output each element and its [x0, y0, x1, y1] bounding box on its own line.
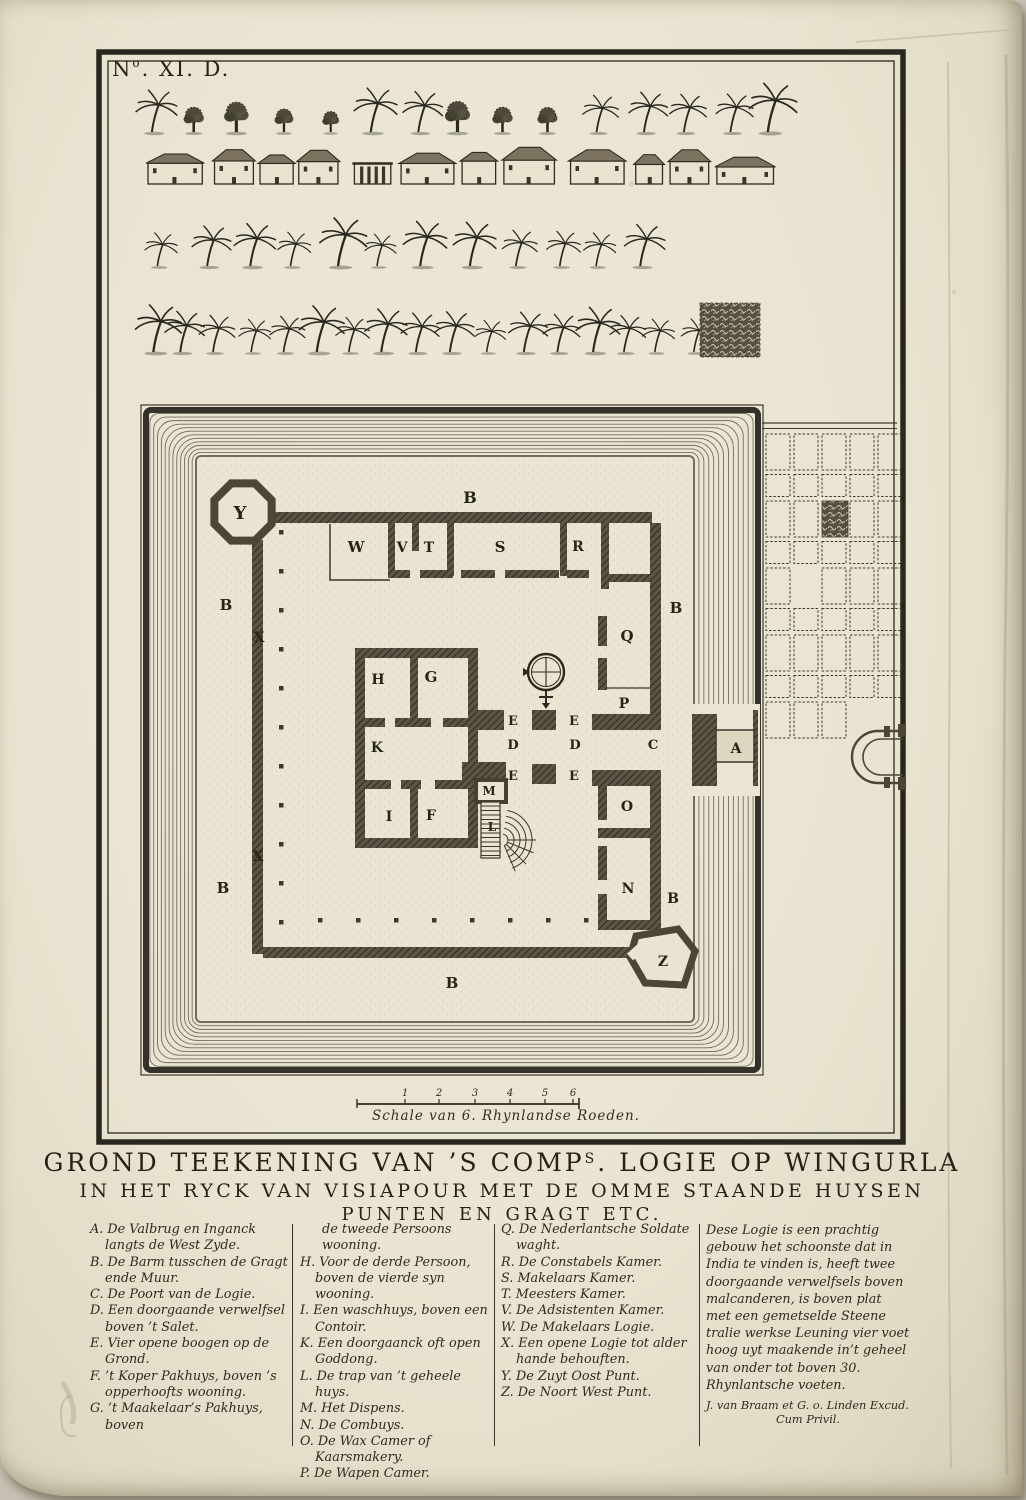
legend-entry: K. Een doorgaanck oft open Goddong.	[300, 1336, 490, 1369]
legend-key: R.	[501, 1255, 515, 1270]
map-letter-L: L	[488, 820, 497, 834]
legend-key: G.	[90, 1401, 104, 1416]
map-letter-Q: Q	[620, 627, 633, 645]
legend-entry-continuation: de tweede Persoons wooning.	[300, 1222, 490, 1255]
legend-divider	[699, 1224, 700, 1446]
map-letter-N: N	[622, 881, 635, 897]
map-letter-W: W	[347, 538, 366, 556]
legend-entry: A. De Valbrug en Inganck langts de West …	[90, 1222, 290, 1255]
map-letter-O: O	[621, 799, 633, 815]
map-letter-E: E	[569, 714, 579, 729]
map-letter-G: G	[425, 668, 438, 686]
legend-key: M.	[300, 1401, 317, 1416]
legend-entry: H. Voor de derde Persoon, boven de vierd…	[300, 1255, 490, 1304]
plate-number: No. XI. D.	[112, 56, 230, 81]
scanned-print-page: BYWVTSRBBXQHGPEEDDCAKEEMOIFLXNBBZB 12345…	[0, 0, 1026, 1500]
legend-entry: R. De Constabels Kamer.	[501, 1255, 697, 1271]
legend-key: N.	[300, 1418, 314, 1433]
map-letter-F: F	[426, 808, 436, 824]
map-title: GROND TEEKENING VAN ’S COMPS. LOGIE OP W…	[0, 1148, 1004, 1225]
map-letter-A: A	[730, 741, 743, 757]
legend-key: S.	[501, 1271, 513, 1286]
legend-key: H.	[300, 1255, 315, 1270]
map-letter-H: H	[371, 672, 384, 688]
legend-entry: D. Een doorgaande verwelfsel boven ’t Sa…	[90, 1303, 290, 1336]
map-letter-E: E	[508, 769, 518, 784]
legend-column-4: Dese Logie is een prachtig gebouw het sc…	[706, 1222, 910, 1426]
legend-entry: Z. De Noort West Punt.	[501, 1385, 697, 1401]
map-letter-X: X	[253, 849, 264, 865]
legend-key: V.	[501, 1303, 512, 1318]
legend-key: B.	[90, 1255, 103, 1270]
map-letter-B: B	[670, 599, 683, 617]
legend-key: K.	[300, 1336, 314, 1351]
scale-bar: 123456	[357, 1088, 579, 1109]
map-letter-D: D	[569, 738, 580, 753]
map-letter-T: T	[424, 540, 435, 556]
legend-key: C.	[90, 1287, 103, 1302]
map-letter-B: B	[217, 879, 230, 897]
legend-key: Z.	[501, 1385, 514, 1400]
legend-key: I.	[300, 1303, 309, 1318]
legend-note-paragraph: Dese Logie is een prachtig gebouw het sc…	[706, 1222, 910, 1394]
legend-entry: Y. De Zuyt Oost Punt.	[501, 1369, 697, 1385]
legend-key: D.	[90, 1303, 104, 1318]
legend-column-3: Q. De Nederlantsche Soldate waght.R. De …	[501, 1222, 697, 1401]
legend-key: P.	[300, 1466, 310, 1481]
scale-tick-label: 5	[542, 1088, 548, 1099]
legend-divider	[292, 1224, 293, 1446]
clamp-mark	[852, 724, 906, 790]
map-letter-S: S	[495, 538, 506, 556]
legend-entry: L. De trap van ’t geheele huys.	[300, 1369, 490, 1402]
map-letter-B: B	[220, 596, 233, 614]
map-letter-V: V	[396, 540, 409, 556]
map-letter-M: M	[482, 784, 495, 798]
legend-entry: V. De Adsistenten Kamer.	[501, 1303, 697, 1319]
legend-key: F.	[90, 1369, 101, 1384]
legend-entry: G. ’t Maakelaar’s Pakhuys, boven	[90, 1401, 290, 1434]
imprint-line: Cum Privil.	[706, 1413, 910, 1427]
map-letter-E: E	[569, 769, 579, 784]
legend-entry: Q. De Nederlantsche Soldate waght.	[501, 1222, 697, 1255]
scale-tick-label: 3	[472, 1088, 478, 1099]
map-letter-C: C	[648, 738, 658, 753]
map-letter-B: B	[446, 974, 459, 992]
legend-key: L.	[300, 1369, 313, 1384]
map-letter-P: P	[619, 696, 630, 712]
legend-entry: F. ’t Koper Pakhuys, boven ’s opperhooft…	[90, 1369, 290, 1402]
legend-entry: N. De Combuys.	[300, 1418, 490, 1434]
map-letter-I: I	[386, 809, 393, 825]
legend-entry: X. Een opene Logie tot alder hande behou…	[501, 1336, 697, 1369]
decorative-landscape-rows	[136, 83, 797, 357]
legend-entry: E. Vier opene boogen op de Grond.	[90, 1336, 290, 1369]
legend-key: Y.	[501, 1369, 512, 1384]
legend-entry: M. Het Dispens.	[300, 1401, 490, 1417]
legend-column-1: A. De Valbrug en Inganck langts de West …	[90, 1222, 290, 1434]
title-line-2: IN HET RYCK VAN VISIAPOUR MET DE OMME ST…	[0, 1180, 1004, 1202]
legend-entry: B. De Barm tusschen de Gragt ende Muur.	[90, 1255, 290, 1288]
legend-entry: W. De Makelaars Logie.	[501, 1320, 697, 1336]
map-letter-R: R	[572, 539, 584, 555]
legend-key: X.	[501, 1336, 514, 1351]
legend-entry: I. Een waschhuys, boven een Contoir.	[300, 1303, 490, 1336]
legend-key: A.	[90, 1222, 103, 1237]
legend-key: Q.	[501, 1222, 515, 1237]
garden-plots-grid	[762, 423, 902, 738]
map-letter-K: K	[371, 740, 384, 756]
legend-entry: O. De Wax Camer of Kaarsmakery.	[300, 1434, 490, 1467]
map-letter-Z: Z	[658, 954, 668, 970]
legend-key: E.	[90, 1336, 103, 1351]
map-letter-Y: Y	[233, 503, 248, 524]
legend: A. De Valbrug en Inganck langts de West …	[88, 1222, 912, 1452]
scale-tick-label: 1	[402, 1088, 408, 1099]
legend-entry: P. De Wapen Camer.	[300, 1466, 490, 1482]
scale-tick-label: 6	[570, 1088, 577, 1099]
scale-tick-label: 2	[435, 1088, 442, 1099]
scale-caption: Schale van 6. Rhynlandse Roeden.	[372, 1108, 640, 1124]
map-letter-D: D	[507, 738, 518, 753]
map-letter-B: B	[463, 488, 477, 507]
map-letter-E: E	[508, 714, 518, 729]
legend-divider	[494, 1224, 495, 1446]
scale-tick-label: 4	[506, 1088, 513, 1099]
legend-column-2: de tweede Persoons wooning.H. Voor de de…	[300, 1222, 490, 1483]
legend-key: O.	[300, 1434, 314, 1449]
map-letter-X: X	[254, 630, 265, 646]
legend-entry: C. De Poort van de Logie.	[90, 1287, 290, 1303]
imprint-line: J. van Braam et G. o. Linden Excud.	[706, 1399, 910, 1413]
legend-entry: S. Makelaars Kamer.	[501, 1271, 697, 1287]
title-line-1: GROND TEEKENING VAN ’S COMPS. LOGIE OP W…	[0, 1148, 1004, 1177]
legend-entry: T. Meesters Kamer.	[501, 1287, 697, 1303]
map-letter-B: B	[667, 891, 679, 907]
legend-key: T.	[501, 1287, 512, 1302]
legend-key: W.	[501, 1320, 516, 1335]
